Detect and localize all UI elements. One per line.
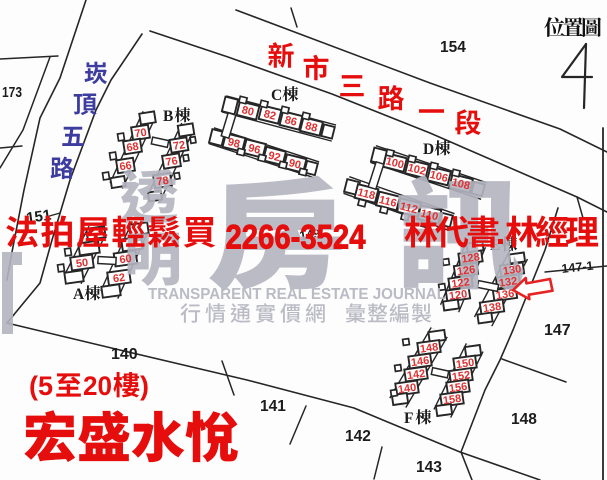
- svg-text:): ): [140, 371, 149, 401]
- svg-text:140: 140: [111, 346, 138, 363]
- svg-text:D: D: [423, 141, 434, 158]
- svg-text:20: 20: [83, 371, 112, 401]
- svg-text:173: 173: [2, 84, 22, 101]
- svg-text:147: 147: [544, 322, 571, 339]
- svg-text:72: 72: [172, 139, 186, 153]
- svg-text:141: 141: [260, 398, 286, 415]
- svg-text:76: 76: [165, 155, 179, 169]
- svg-text:60: 60: [119, 253, 133, 267]
- svg-text:146: 146: [410, 355, 430, 369]
- svg-text:138: 138: [482, 301, 502, 315]
- svg-text:F: F: [404, 410, 413, 427]
- svg-text:158: 158: [442, 393, 462, 407]
- svg-text:78: 78: [156, 175, 170, 189]
- svg-text:70: 70: [134, 127, 148, 141]
- svg-text:154: 154: [440, 39, 466, 56]
- svg-text:(5: (5: [29, 371, 53, 401]
- svg-text:148: 148: [511, 411, 537, 428]
- svg-text:C: C: [271, 87, 282, 104]
- svg-text:A: A: [73, 286, 85, 303]
- svg-text:68: 68: [126, 141, 140, 155]
- svg-text:B: B: [163, 108, 173, 125]
- svg-text:2266-3524: 2266-3524: [226, 219, 366, 257]
- svg-text:50: 50: [75, 257, 89, 271]
- svg-text:140: 140: [397, 382, 417, 396]
- svg-text:142: 142: [406, 368, 426, 382]
- svg-text:148: 148: [419, 341, 439, 355]
- svg-text:120: 120: [448, 288, 468, 302]
- svg-text:142: 142: [345, 428, 371, 445]
- svg-text:66: 66: [119, 160, 133, 174]
- svg-text:143: 143: [416, 459, 442, 476]
- svg-text:TRANSPARENT REAL ESTATE JOURNA: TRANSPARENT REAL ESTATE JOURNAL: [148, 286, 446, 303]
- svg-text:62: 62: [112, 272, 126, 286]
